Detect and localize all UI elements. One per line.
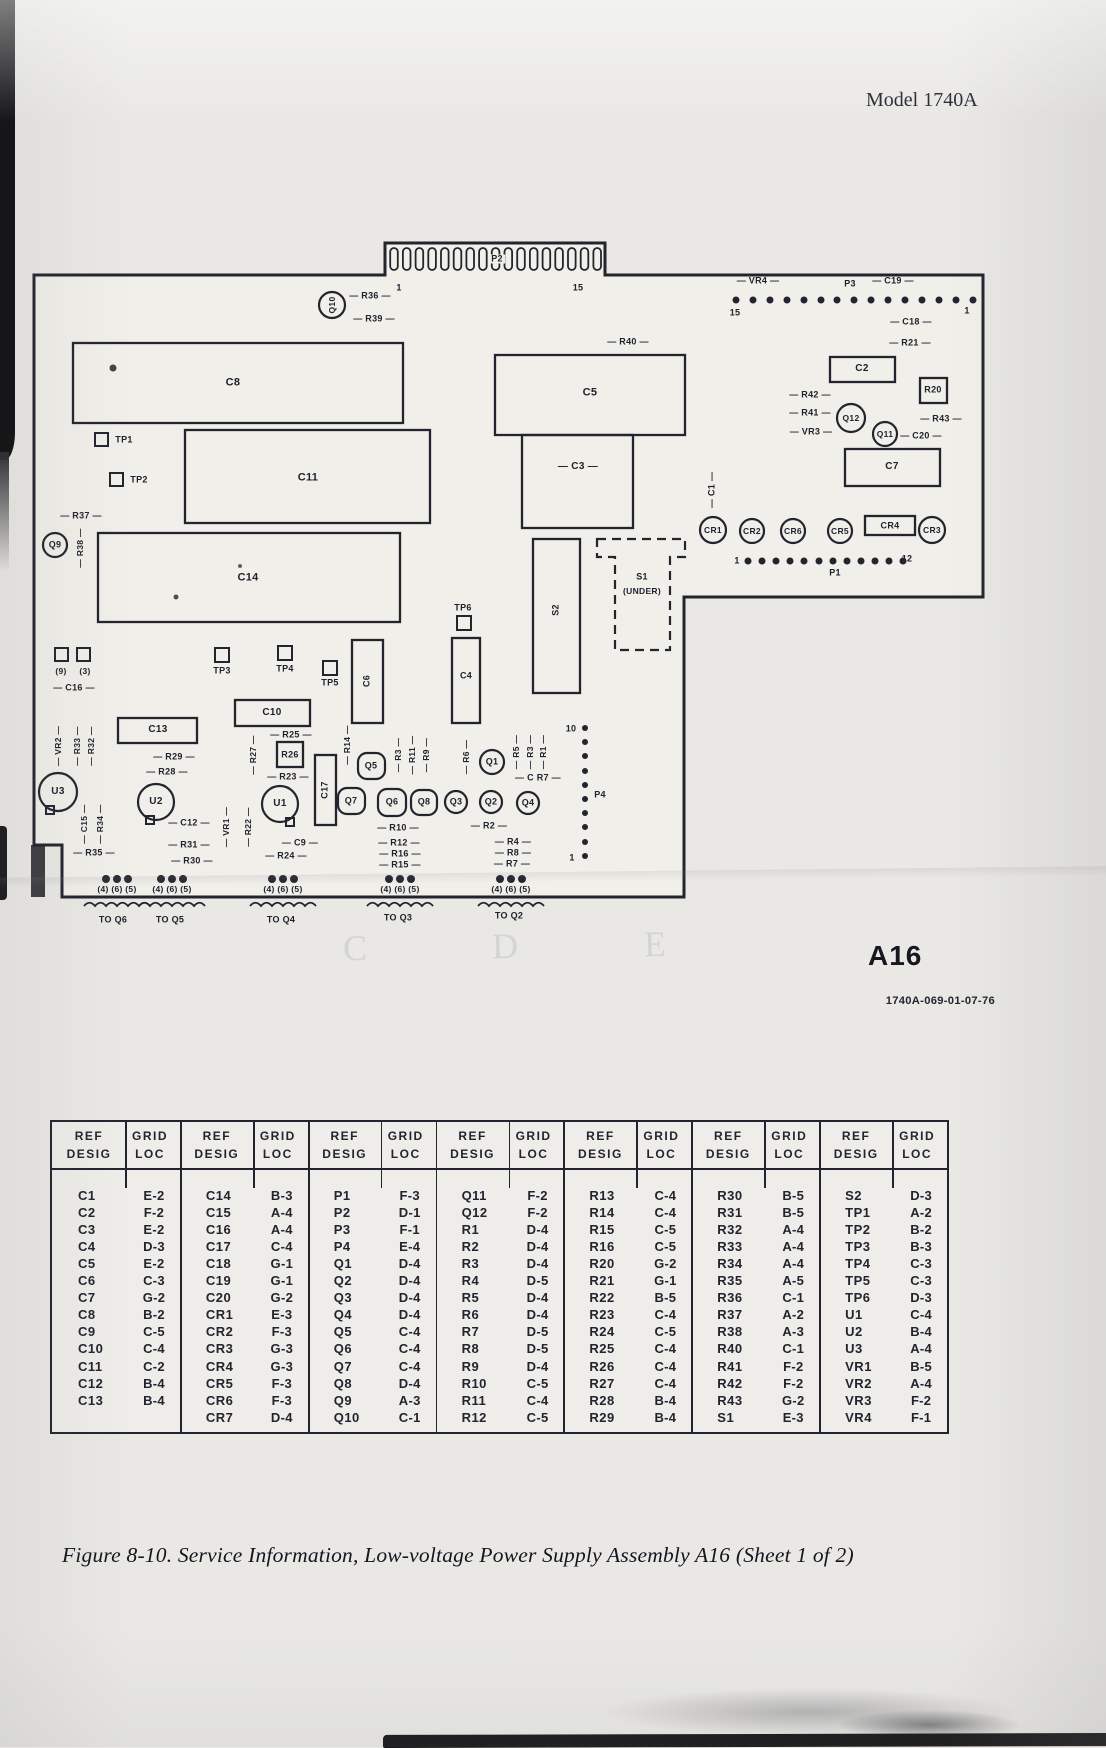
table-header-grid: GRID [506, 1129, 562, 1143]
component-label: — C19 — [872, 277, 914, 286]
component-label: C17 [321, 781, 330, 798]
component-label: — R42 — [789, 391, 831, 400]
table-header-grid: LOC [250, 1147, 306, 1161]
table-cell-grid-loc: C-4 [639, 1204, 691, 1221]
table-header-ref: REF [693, 1129, 763, 1143]
component-label: — R39 — [353, 315, 395, 324]
component-label: 10 [566, 725, 577, 734]
table-cell-grid-loc: D-3 [128, 1238, 180, 1255]
circuit-board-diagram [0, 0, 1106, 1747]
connector-pin-dot [496, 875, 504, 883]
connector-pin-dot [168, 875, 176, 883]
component-label: C11 [298, 473, 318, 484]
component-label: 1 [396, 284, 401, 293]
component-label: — C9 — [282, 839, 318, 848]
table-header-ref: REF [821, 1129, 891, 1143]
figure-caption: Figure 8-10. Service Information, Low-vo… [62, 1543, 962, 1568]
table-cell-grid-loc: C-4 [639, 1306, 691, 1323]
connector-pin-dot [969, 297, 976, 304]
table-cell-grid-loc: D-4 [512, 1289, 564, 1306]
connector-pin-dot [102, 875, 110, 883]
component-label: Q8 [418, 798, 431, 807]
table-cell-grid-loc: E-3 [256, 1306, 308, 1323]
table-cell-grid-loc: G-2 [767, 1392, 819, 1409]
table-cell-grid-loc: C-1 [384, 1409, 436, 1426]
table-cell-grid-loc: C-3 [895, 1272, 947, 1289]
component-label: TO Q4 [267, 916, 295, 925]
table-cell-grid-loc: B-4 [128, 1375, 180, 1392]
component-label: TP5 [321, 679, 338, 688]
component-label: — R28 — [146, 768, 188, 777]
table-cell-grid-loc: C-5 [512, 1375, 564, 1392]
component-label: P1 [829, 569, 841, 578]
component-label: — R3 — [526, 735, 535, 769]
component-label: — R10 — [377, 824, 419, 833]
table-header-grid: GRID [250, 1129, 306, 1143]
component-label: Q6 [386, 798, 399, 807]
connector-pin-dot [268, 875, 276, 883]
table-cell-grid-loc: D-3 [895, 1289, 947, 1306]
component-label: — C20 — [900, 432, 942, 441]
component-label: TP1 [115, 436, 132, 445]
table-header-grid: LOC [633, 1147, 689, 1161]
table-cell-grid-loc: C-5 [639, 1323, 691, 1340]
connector-pin-dot [582, 796, 588, 802]
connector-pin-dot [766, 297, 773, 304]
table-cell-grid-loc: G-1 [256, 1272, 308, 1289]
table-cell-grid-loc: F-3 [256, 1375, 308, 1392]
connector-pin-dot [507, 875, 515, 883]
component-label: — R23 — [267, 773, 309, 782]
table-header-grid: LOC [761, 1147, 817, 1161]
scanned-service-manual-page: P2115— R36 —— R39 —Q10— VR4 —P3— C19 —15… [0, 0, 1106, 1747]
component-label: C7 [885, 462, 898, 472]
connector-pin-dot [773, 558, 780, 565]
brace-squiggle [139, 903, 205, 906]
connector-pin-dot [582, 853, 588, 859]
component-label: — R25 — [270, 731, 312, 740]
table-cell-grid-loc: C-5 [639, 1238, 691, 1255]
bleed-through-letter: D [492, 925, 519, 967]
ref-desig-table: REFDESIGGRIDLOCC1E-2C2F-2C3E-2C4D-3C5E-2… [50, 1120, 949, 1434]
component-label: — VR3 — [790, 428, 833, 437]
table-cell-grid-loc: F-2 [767, 1375, 819, 1392]
table-cell-grid-loc: E-2 [128, 1255, 180, 1272]
table-cell-grid-loc: E-3 [767, 1409, 819, 1426]
component-label: (UNDER) [623, 587, 661, 596]
table-cell-grid-loc: A-3 [767, 1323, 819, 1340]
connector-pin-dot [900, 558, 907, 565]
component-label: C13 [148, 725, 167, 735]
connector-pin-dot [290, 875, 298, 883]
component-label: — VR1 — [222, 807, 231, 847]
table-cell-grid-loc: B-3 [256, 1187, 308, 1204]
connector-pin-dot [857, 558, 864, 565]
table-header-grid: GRID [761, 1129, 817, 1143]
connector-pin-dot [582, 810, 588, 816]
component-label: P2 [489, 255, 505, 264]
component-label: — R9 — [422, 738, 431, 772]
table-column-divider [563, 1122, 565, 1432]
component-label: — R8 — [495, 849, 531, 858]
table-header-ref: DESIG [565, 1147, 635, 1161]
component-label: C5 [583, 388, 598, 399]
component-label: C14 [237, 573, 258, 584]
table-cell-grid-loc: C-4 [128, 1340, 180, 1357]
component-label: TP3 [213, 667, 230, 676]
connector-pin-dot [843, 558, 850, 565]
table-cell-grid-loc: C-4 [256, 1238, 308, 1255]
assembly-id-label: A16 [868, 940, 948, 972]
brace-squiggle [250, 903, 316, 906]
table-cell-grid-loc: C-4 [384, 1340, 436, 1357]
document-number: 1740A-069-01-07-76 [855, 995, 995, 1007]
connector-pin-dot [582, 753, 588, 759]
component-label: — R11 — [408, 736, 417, 775]
table-cell-grid-loc: C-4 [384, 1323, 436, 1340]
table-cell-grid-loc: F-2 [895, 1392, 947, 1409]
connector-pin-dot [518, 875, 526, 883]
table-cell-grid-loc: C-4 [384, 1358, 436, 1375]
component-label: Q3 [450, 798, 463, 807]
table-cell-grid-loc: C-4 [895, 1306, 947, 1323]
component-label: TP4 [276, 665, 293, 674]
connector-pin-dot [868, 297, 875, 304]
table-cell-grid-loc: D-3 [895, 1187, 947, 1204]
table-header-ref: DESIG [182, 1147, 252, 1161]
component-label: (9) [55, 667, 66, 676]
table-cell-grid-loc: A-4 [895, 1375, 947, 1392]
table-cell-grid-loc: C-5 [512, 1409, 564, 1426]
connector-pin-dot [385, 875, 393, 883]
component-label: C2 [855, 364, 868, 374]
table-cell-grid-loc: B-5 [767, 1187, 819, 1204]
table-cell-grid-loc: A-4 [767, 1255, 819, 1272]
bleed-through-letter: E [644, 923, 667, 965]
connector-pin-dot [749, 297, 756, 304]
component-label: — C12 — [168, 819, 210, 828]
table-cell-grid-loc: D-4 [512, 1255, 564, 1272]
table-cell-grid-loc: C-1 [767, 1289, 819, 1306]
connector-pin-dot [935, 297, 942, 304]
table-cell-grid-loc: D-5 [512, 1323, 564, 1340]
table-header-grid: LOC [378, 1147, 434, 1161]
component-label: — R16 — [379, 850, 421, 859]
table-cell-grid-loc: G-2 [128, 1289, 180, 1306]
table-cell-grid-loc: B-4 [128, 1392, 180, 1409]
component-label: S2 [552, 604, 561, 616]
component-label: — R41 — [789, 409, 831, 418]
component-label: R20 [924, 386, 941, 395]
table-header-ref: DESIG [438, 1147, 508, 1161]
table-cell-grid-loc: B-2 [128, 1306, 180, 1323]
component-label: (4) (6) (5) [152, 885, 191, 894]
table-header-grid: GRID [889, 1129, 945, 1143]
table-column-divider [180, 1122, 182, 1432]
component-label: P3 [844, 280, 856, 289]
table-cell-grid-loc: A-4 [767, 1221, 819, 1238]
table-cell-grid-loc: C-2 [128, 1358, 180, 1375]
component-label: TO Q6 [99, 916, 127, 925]
table-column-divider [819, 1122, 821, 1432]
component-label: — R30 — [171, 857, 213, 866]
component-label: Q9 [49, 541, 62, 550]
table-cell-grid-loc: D-4 [256, 1409, 308, 1426]
connector-pin-dot [582, 739, 588, 745]
table-cell-grid-loc: D-4 [512, 1358, 564, 1375]
component-label: S1 [636, 573, 648, 582]
table-header-grid: GRID [378, 1129, 434, 1143]
brace-squiggle [478, 903, 544, 906]
connector-pin-dot [124, 875, 132, 883]
component-label: CR6 [784, 527, 802, 536]
table-cell-grid-loc: C-4 [639, 1375, 691, 1392]
connector-pin-dot [815, 558, 822, 565]
component-label: — R6 — [462, 740, 471, 774]
component-label: — R3 — [394, 738, 403, 772]
brace-squiggle [367, 903, 433, 906]
table-cell-grid-loc: A-4 [767, 1238, 819, 1255]
component-label: — R7 — [494, 860, 530, 869]
table-cell-grid-loc: G-2 [639, 1255, 691, 1272]
component-label: C10 [262, 708, 281, 718]
scan-edge-artifact [0, 826, 7, 900]
table-cell-grid-loc: C-1 [767, 1340, 819, 1357]
table-cell-grid-loc: F-1 [895, 1409, 947, 1426]
component-label: — R33 — [73, 726, 82, 765]
component-label: Q12 [843, 414, 860, 423]
component-label: — R2 — [471, 822, 507, 831]
table-header-ref: REF [310, 1129, 380, 1143]
table-header-ref: REF [54, 1129, 124, 1143]
table-header-ref: DESIG [693, 1147, 763, 1161]
component-label: — R36 — [349, 292, 391, 301]
component-label: — C15 — [80, 804, 89, 843]
component-label: — C18 — [890, 318, 932, 327]
component-label: CR2 [743, 527, 761, 536]
table-column-divider [436, 1122, 438, 1432]
component-label: — R12 — [378, 839, 420, 848]
connector-pin-dot [582, 768, 588, 774]
component-label: — R38 — [76, 528, 85, 567]
table-cell-grid-loc: C-5 [128, 1323, 180, 1340]
table-cell-grid-loc: E-4 [384, 1238, 436, 1255]
table-cell-grid-loc: D-4 [512, 1238, 564, 1255]
connector-pin-dot [582, 824, 588, 830]
connector-pin-dot [829, 558, 836, 565]
component-label: — R37 — [60, 512, 102, 521]
table-cell-grid-loc: C-4 [639, 1340, 691, 1357]
table-cell-grid-loc: B-3 [895, 1238, 947, 1255]
table-cell-grid-loc: C-5 [639, 1221, 691, 1238]
component-label: 1 [734, 557, 739, 566]
table-cell-grid-loc: C-4 [512, 1392, 564, 1409]
table-cell-grid-loc: F-3 [256, 1392, 308, 1409]
table-header-ref: REF [565, 1129, 635, 1143]
table-header-grid: LOC [122, 1147, 178, 1161]
table-cell-grid-loc: C-3 [128, 1272, 180, 1289]
table-cell-grid-loc: C-3 [895, 1255, 947, 1272]
connector-pin-dot [582, 782, 588, 788]
component-label: U2 [149, 797, 162, 807]
component-label: TO Q3 [384, 914, 412, 923]
component-label: — C16 — [53, 684, 95, 693]
table-header-ref: REF [182, 1129, 252, 1143]
table-cell-grid-loc: G-3 [256, 1358, 308, 1375]
connector-pin-dot [396, 875, 404, 883]
component-label: — C3 — [558, 462, 598, 472]
component-label: — R4 — [495, 838, 531, 847]
table-header-ref: DESIG [310, 1147, 380, 1161]
table-header-grid: GRID [122, 1129, 178, 1143]
table-cell-grid-loc: A-4 [256, 1204, 308, 1221]
table-header-divider [52, 1168, 947, 1170]
component-label: 15 [573, 284, 584, 293]
table-cell-grid-loc: D-5 [512, 1272, 564, 1289]
connector-pin-dot [113, 875, 121, 883]
component-label: — C1 — [708, 472, 717, 508]
connector-pin-dot [582, 839, 588, 845]
component-label: CR5 [831, 527, 849, 536]
component-label: — R22 — [244, 807, 253, 846]
table-cell-grid-loc: D-5 [512, 1340, 564, 1357]
component-label: — R32 — [87, 726, 96, 765]
component-label: 15 [730, 309, 741, 318]
component-label: — C R7 — [515, 774, 561, 783]
component-label: — R31 — [168, 841, 210, 850]
connector-pin-dot [759, 558, 766, 565]
component-label: 1 [964, 307, 969, 316]
component-label: U1 [273, 799, 286, 809]
table-cell-grid-loc: E-2 [128, 1187, 180, 1204]
component-label: Q7 [345, 797, 358, 806]
component-label: TO Q5 [156, 916, 184, 925]
component-label: TP6 [454, 604, 471, 613]
component-label: (4) (6) (5) [380, 885, 419, 894]
connector-pin-dot [157, 875, 165, 883]
table-cell-grid-loc: B-4 [895, 1323, 947, 1340]
table-cell-grid-loc: F-3 [384, 1187, 436, 1204]
table-cell-grid-loc: D-4 [384, 1272, 436, 1289]
table-header-ref: REF [438, 1129, 508, 1143]
connector-pin-dot [279, 875, 287, 883]
component-label: — R14 — [343, 725, 352, 764]
connector-pin-dot [902, 297, 909, 304]
table-cell-grid-loc: A-4 [895, 1340, 947, 1357]
component-label: — R21 — [889, 339, 931, 348]
component-label: Q1 [486, 758, 499, 767]
component-label: Q10 [328, 297, 337, 314]
table-cell-grid-loc: D-1 [384, 1204, 436, 1221]
table-cell-grid-loc: D-4 [384, 1375, 436, 1392]
table-cell-grid-loc: B-5 [895, 1358, 947, 1375]
component-label: (4) (6) (5) [263, 885, 302, 894]
connector-pin-dot [952, 297, 959, 304]
scan-edge-artifact [383, 1733, 1106, 1748]
component-label: TO Q2 [495, 912, 523, 921]
connector-pin-dot [787, 558, 794, 565]
component-label: — R40 — [607, 338, 649, 347]
table-header-ref: DESIG [821, 1147, 891, 1161]
table-cell-grid-loc: B-5 [639, 1289, 691, 1306]
table-cell-grid-loc: B-5 [767, 1204, 819, 1221]
component-label: (3) [79, 667, 90, 676]
table-header-grid: GRID [633, 1129, 689, 1143]
connector-pin-dot [179, 875, 187, 883]
connector-pin-dot [886, 558, 893, 565]
connector-pin-dot [783, 297, 790, 304]
table-header-grid: LOC [506, 1147, 562, 1161]
scan-edge-artifact [0, 0, 15, 460]
table-cell-grid-loc: G-2 [256, 1289, 308, 1306]
component-label: C4 [460, 672, 472, 681]
page-title: Model 1740A [866, 89, 1006, 112]
connector-pin-dot [733, 297, 740, 304]
bleed-through-letter: C [343, 927, 368, 969]
component-label: R26 [281, 751, 298, 760]
table-cell-grid-loc: A-3 [384, 1392, 436, 1409]
table-cell-grid-loc: C-4 [639, 1358, 691, 1375]
component-label: — R27 — [249, 735, 258, 774]
component-label: — VR4 — [737, 277, 780, 286]
table-cell-grid-loc: G-1 [256, 1255, 308, 1272]
table-column-divider [691, 1122, 693, 1432]
table-header-grid: LOC [889, 1147, 945, 1161]
table-cell-grid-loc: G-3 [256, 1340, 308, 1357]
component-label: P4 [594, 791, 606, 800]
component-label: CR1 [704, 526, 722, 535]
table-cell-grid-loc: G-1 [639, 1272, 691, 1289]
connector-pin-dot [800, 297, 807, 304]
component-label: — R1 — [539, 735, 548, 769]
table-cell-grid-loc: D-4 [384, 1306, 436, 1323]
table-cell-grid-loc: B-4 [639, 1392, 691, 1409]
table-cell-grid-loc: A-2 [767, 1306, 819, 1323]
connector-pin-dot [801, 558, 808, 565]
connector-pin-dot [885, 297, 892, 304]
component-label: CR3 [923, 526, 941, 535]
table-cell-grid-loc: D-4 [384, 1289, 436, 1306]
table-cell-grid-loc: B-2 [895, 1221, 947, 1238]
table-cell-grid-loc: B-4 [639, 1409, 691, 1426]
table-cell-grid-loc: D-4 [512, 1306, 564, 1323]
component-label: Q5 [365, 762, 378, 771]
component-label: — R15 — [379, 861, 421, 870]
table-column-divider [308, 1122, 310, 1432]
component-label: C8 [226, 378, 241, 389]
table-cell-grid-loc: A-2 [895, 1204, 947, 1221]
table-cell-grid-loc: F-3 [256, 1323, 308, 1340]
table-cell-grid-loc: F-2 [512, 1187, 564, 1204]
component-label: Q2 [485, 798, 498, 807]
table-cell-grid-loc: D-4 [384, 1255, 436, 1272]
component-label: TP2 [130, 476, 147, 485]
connector-pin-dot [834, 297, 841, 304]
scan-edge-artifact [0, 452, 9, 572]
table-header-ref: DESIG [54, 1147, 124, 1161]
component-label: — R34 — [96, 804, 105, 843]
connector-pin-dot [817, 297, 824, 304]
component-label: — R35 — [73, 849, 115, 858]
table-cell-grid-loc: A-4 [256, 1221, 308, 1238]
component-label: Q11 [877, 430, 894, 439]
component-label: — R43 — [920, 415, 962, 424]
connector-pin-dot [851, 297, 858, 304]
component-label: C6 [363, 675, 372, 687]
table-cell-grid-loc: D-4 [512, 1221, 564, 1238]
component-label: (4) (6) (5) [491, 885, 530, 894]
table-cell-grid-loc: F-2 [128, 1204, 180, 1221]
